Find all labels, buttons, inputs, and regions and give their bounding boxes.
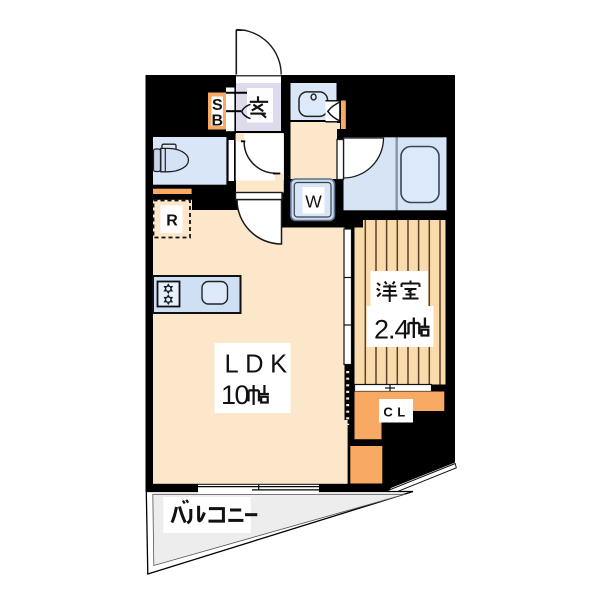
svg-text:10: 10 bbox=[221, 380, 249, 410]
svg-text:CL: CL bbox=[383, 404, 409, 419]
svg-text:B: B bbox=[212, 112, 224, 129]
svg-text:R: R bbox=[166, 213, 178, 230]
svg-text:2.4: 2.4 bbox=[374, 315, 410, 345]
svg-text:W: W bbox=[305, 192, 322, 212]
svg-text:LDK: LDK bbox=[225, 351, 294, 379]
